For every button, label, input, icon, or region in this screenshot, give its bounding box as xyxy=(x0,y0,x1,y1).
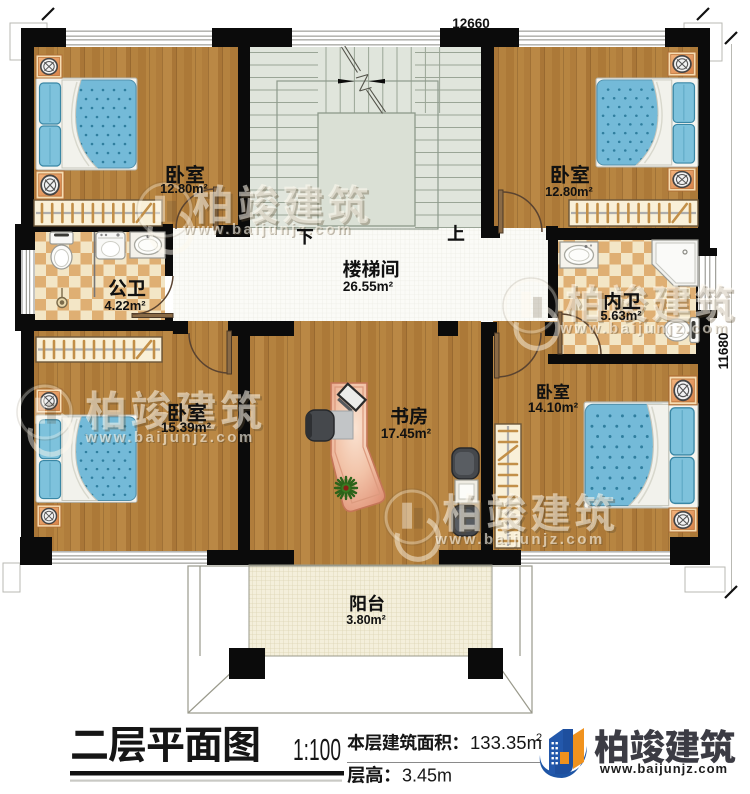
svg-text:3.45m: 3.45m xyxy=(402,766,452,786)
svg-text:12.80m²: 12.80m² xyxy=(160,181,208,196)
svg-text:12.80m²: 12.80m² xyxy=(545,184,593,199)
svg-text:133.35m: 133.35m xyxy=(470,732,542,753)
svg-text:11680: 11680 xyxy=(716,333,731,370)
svg-text:26.55m²: 26.55m² xyxy=(343,279,394,294)
svg-text:5.63m²: 5.63m² xyxy=(600,308,642,323)
svg-text:17.45m²: 17.45m² xyxy=(381,426,432,441)
svg-text:www.baijunjz.com: www.baijunjz.com xyxy=(434,531,604,548)
svg-text:2: 2 xyxy=(536,732,542,744)
svg-text:www.baijunjz.com: www.baijunjz.com xyxy=(182,221,352,238)
svg-text:www.baijunjz.com: www.baijunjz.com xyxy=(559,320,729,337)
svg-text:www.baijunjz.com: www.baijunjz.com xyxy=(599,761,728,776)
svg-text:4.22m²: 4.22m² xyxy=(104,298,146,313)
svg-text:1:100: 1:100 xyxy=(293,732,341,767)
svg-text:3.80m²: 3.80m² xyxy=(346,613,386,627)
svg-text:12660: 12660 xyxy=(452,16,490,31)
svg-text:15.39m²: 15.39m² xyxy=(161,420,212,435)
svg-text:14.10m²: 14.10m² xyxy=(528,400,579,415)
